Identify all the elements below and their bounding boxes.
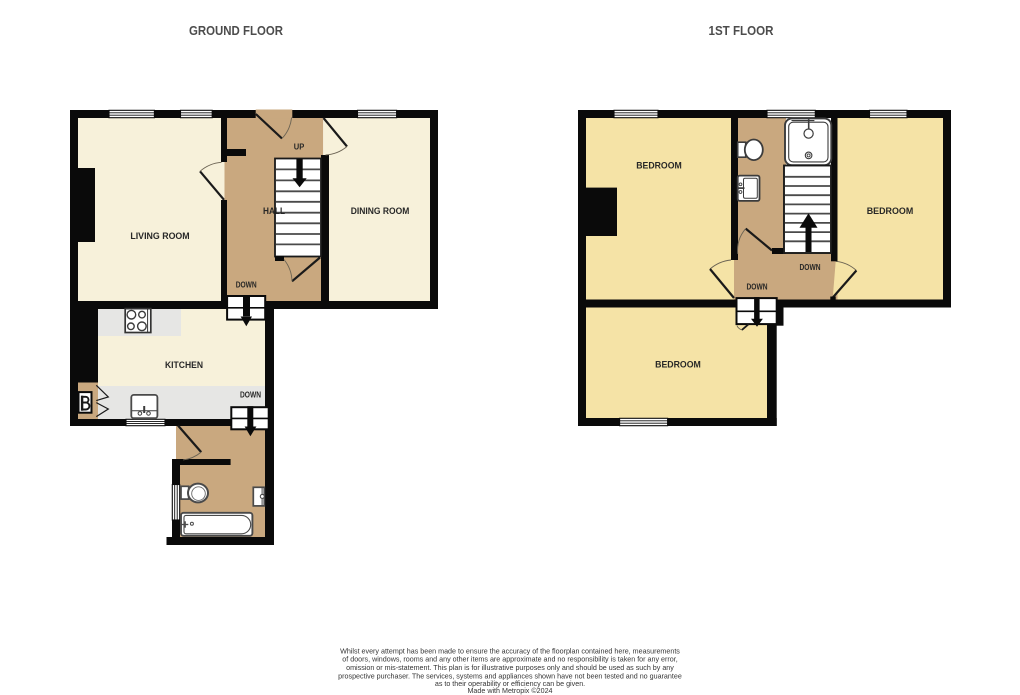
svg-text:1ST FLOOR: 1ST FLOOR (709, 24, 774, 38)
svg-text:GROUND FLOOR: GROUND FLOOR (189, 24, 283, 38)
svg-text:DOWN: DOWN (240, 391, 261, 400)
svg-text:BEDROOM: BEDROOM (636, 160, 682, 171)
svg-text:BEDROOM: BEDROOM (867, 206, 914, 217)
svg-text:DOWN: DOWN (800, 263, 821, 272)
svg-text:of doors, windows, rooms and a: of doors, windows, rooms and any other i… (342, 656, 677, 664)
svg-text:LIVING ROOM: LIVING ROOM (130, 231, 189, 242)
svg-text:DOWN: DOWN (236, 281, 257, 290)
svg-text:prospective purchaser. The ser: prospective purchaser. The services, sys… (338, 672, 682, 680)
svg-text:HALL: HALL (263, 206, 285, 217)
svg-text:BEDROOM: BEDROOM (655, 360, 701, 371)
svg-text:DOWN: DOWN (747, 283, 768, 292)
svg-text:UP: UP (294, 142, 305, 151)
svg-text:Whilst every attempt has been: Whilst every attempt has been made to en… (340, 647, 680, 655)
svg-text:omission or mis-statement. Thi: omission or mis-statement. This plan is … (346, 664, 674, 672)
svg-text:DINING ROOM: DINING ROOM (351, 206, 410, 217)
svg-text:KITCHEN: KITCHEN (165, 360, 203, 371)
svg-text:Made with Metropix ©2024: Made with Metropix ©2024 (467, 687, 552, 695)
